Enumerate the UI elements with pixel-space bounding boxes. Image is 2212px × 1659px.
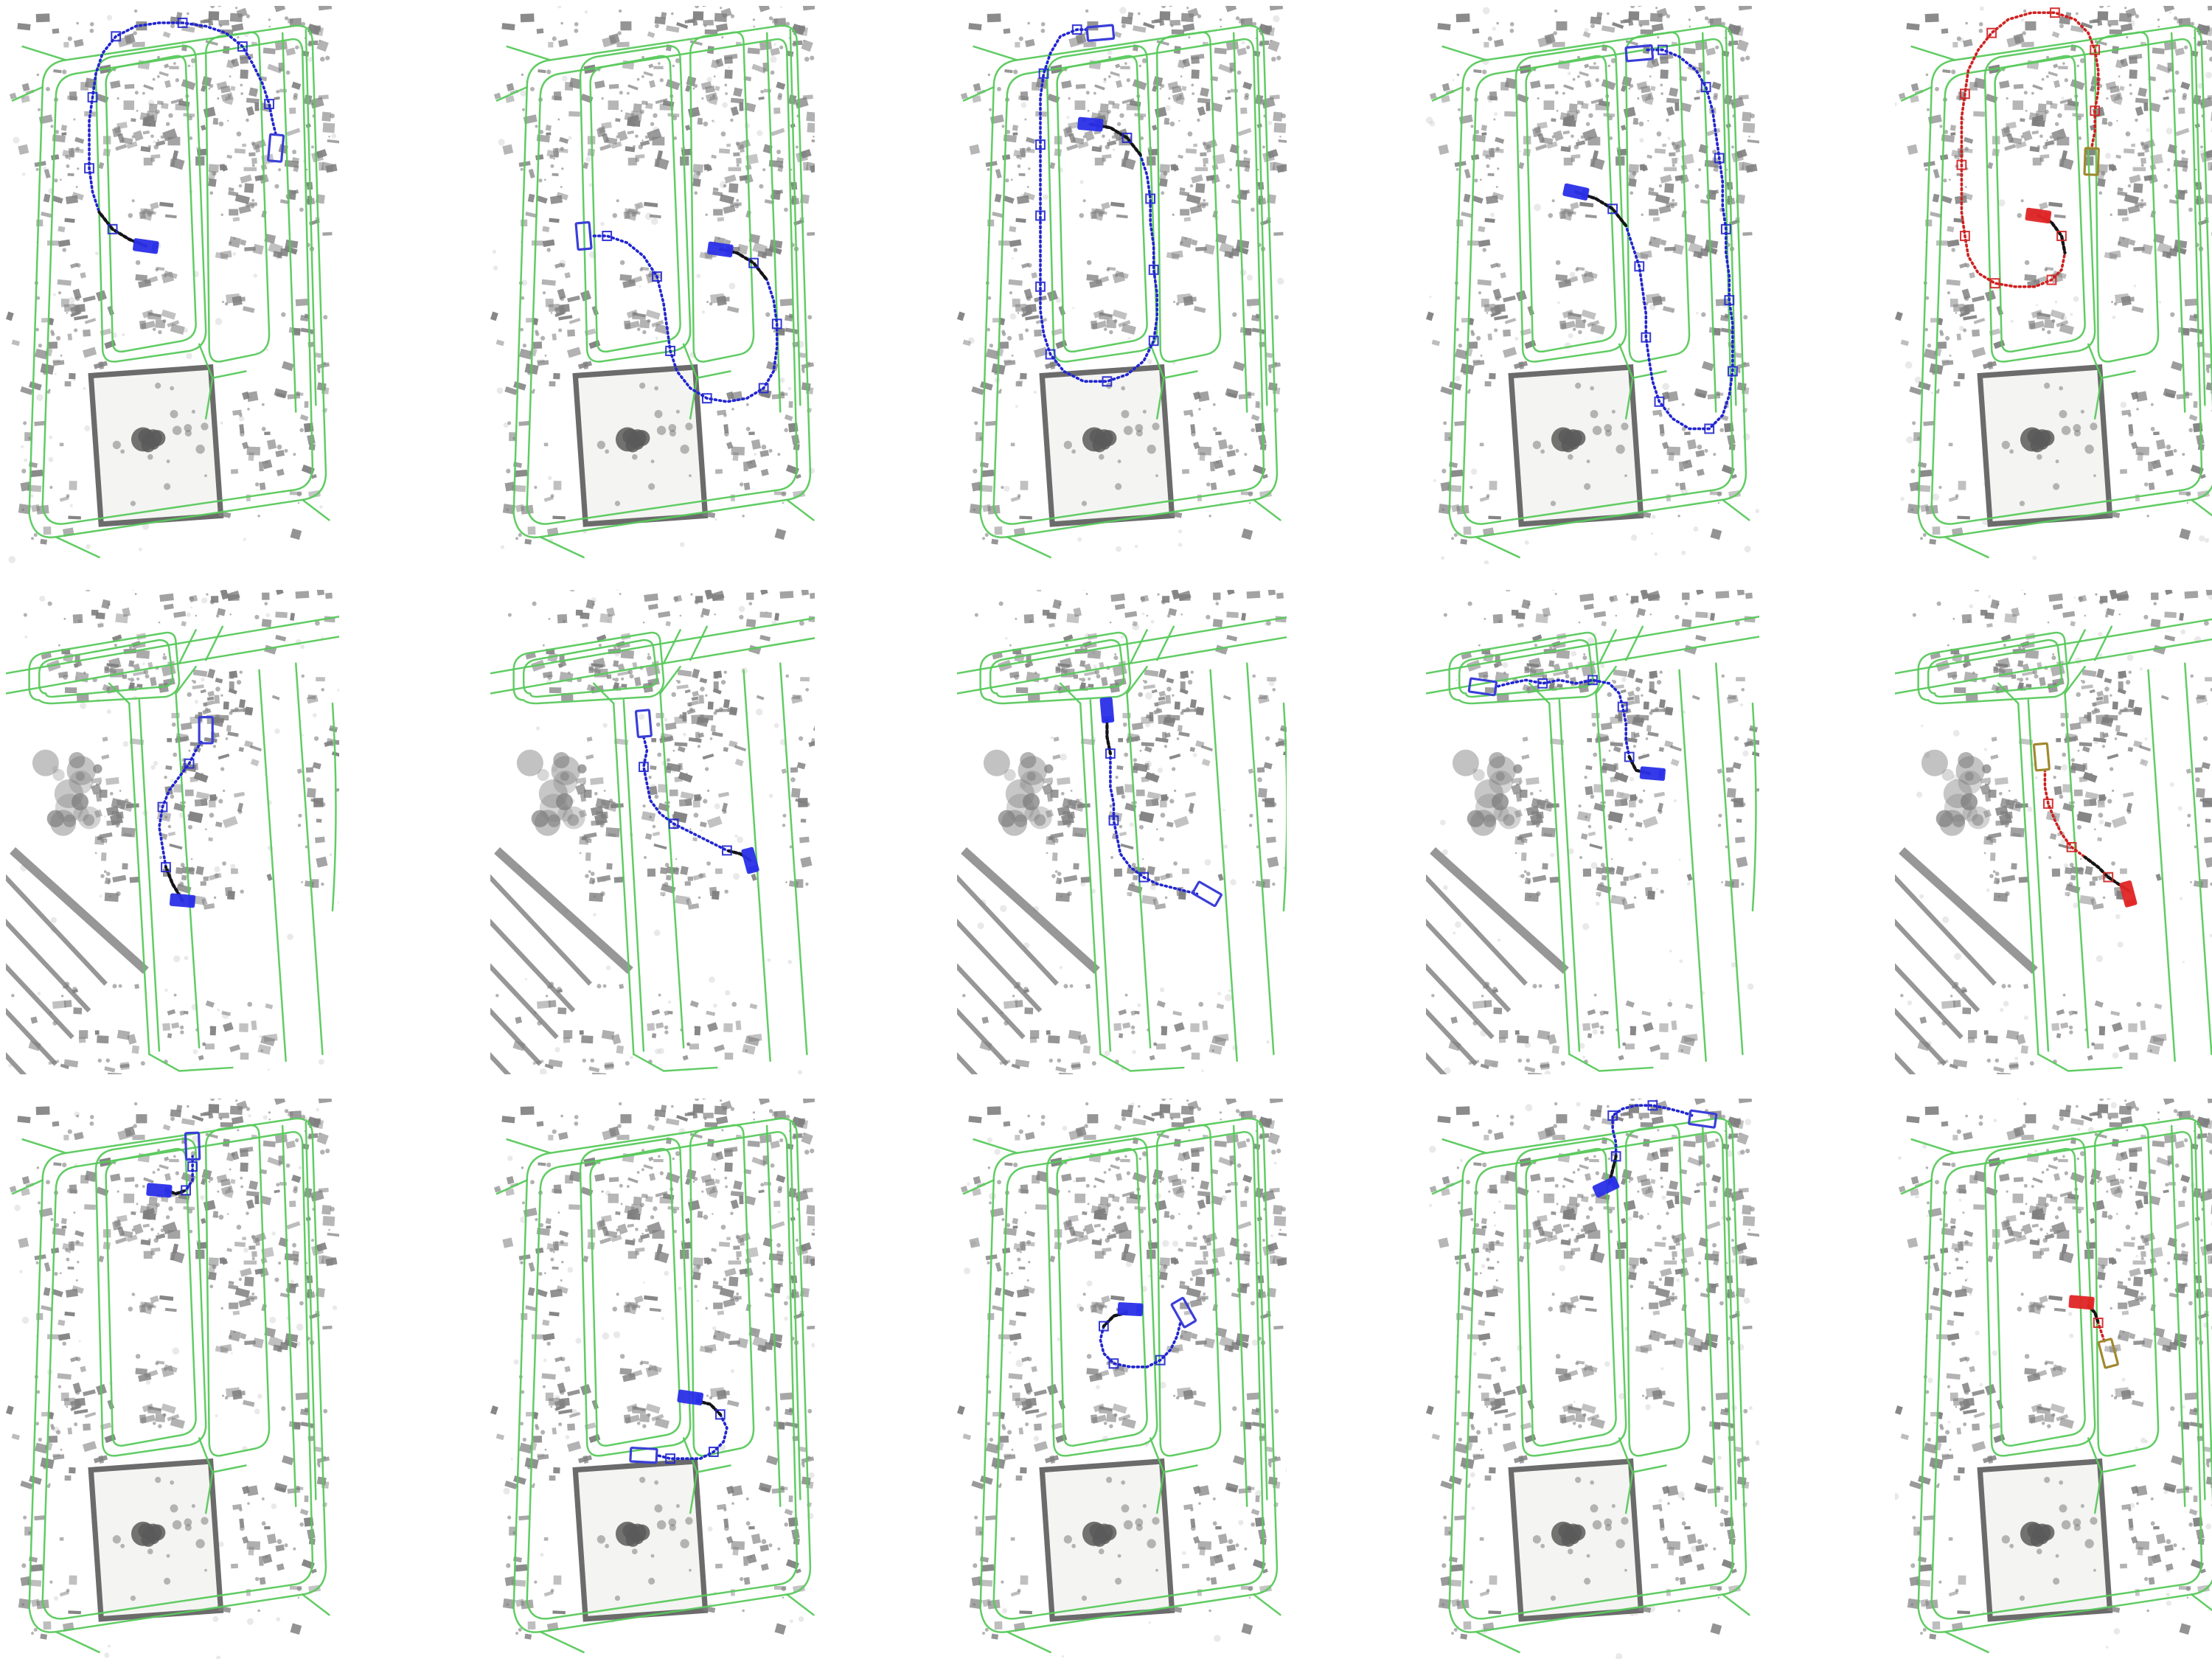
trajectory-path: [1496, 680, 1649, 773]
ego-vehicle-box: [1077, 116, 1104, 131]
map-panel-r1c5: [1895, 6, 2212, 564]
ego-vehicle-box: [146, 1183, 173, 1197]
aerial-map-r1c4: [1426, 6, 1759, 564]
ego-vehicle-box: [1099, 697, 1114, 723]
trajectory-markers: [666, 1410, 725, 1463]
map-panel-r1c4: [1426, 6, 1761, 564]
aerial-background: [490, 1099, 815, 1640]
aerial-map-r1c3: [957, 6, 1287, 564]
trajectory-figure-grid: [0, 0, 2212, 1659]
map-panel-r3c3: [957, 1099, 1287, 1659]
goal-box: [2034, 743, 2049, 771]
map-panel-r2c1: [6, 590, 339, 1074]
map-panel-r1c3: [957, 6, 1287, 564]
aerial-map-r3c4: [1426, 1099, 1759, 1659]
aerial-background: [6, 590, 339, 1074]
map-panel-r1c1: [6, 6, 339, 564]
aerial-map-r2c5: [1895, 590, 2212, 1074]
aerial-map-r2c4: [1426, 590, 1759, 1074]
map-panel-r3c2: [490, 1099, 815, 1659]
aerial-background: [1426, 590, 1759, 1074]
aerial-map-r3c2: [490, 1099, 815, 1659]
goal-box: [1087, 25, 1114, 41]
ego-vehicle-box: [133, 238, 159, 254]
goal-box: [636, 710, 651, 737]
map-panel-r2c5: [1895, 590, 2212, 1074]
aerial-background: [6, 1099, 339, 1640]
map-panel-r2c4: [1426, 590, 1761, 1074]
aerial-map-r3c5: [1895, 1099, 2212, 1659]
ego-vehicle-box: [1117, 1302, 1143, 1316]
aerial-background: [1426, 6, 1759, 545]
aerial-map-r3c1: [6, 1099, 339, 1659]
map-panel-r3c1: [6, 1099, 339, 1659]
aerial-map-r3c3: [957, 1099, 1287, 1659]
ego-vehicle-box: [1562, 183, 1590, 201]
aerial-background: [6, 6, 339, 545]
map-panel-r3c4: [1426, 1099, 1761, 1659]
map-panel-r3c5: [1895, 1099, 2212, 1659]
map-noise: [518, 597, 815, 1074]
ego-vehicle-box: [677, 1389, 703, 1405]
goal-box: [2098, 1339, 2118, 1368]
aerial-background: [1895, 1099, 2212, 1640]
aerial-map-r1c1: [6, 6, 339, 564]
map-noise: [978, 599, 1287, 1072]
aerial-map-r1c5: [1895, 6, 2212, 564]
map-panel-r2c2: [490, 590, 815, 1074]
aerial-background: [957, 1099, 1287, 1640]
trajectory-blue: [1496, 675, 1649, 773]
aerial-background: [1895, 590, 2212, 1074]
ego-vehicle-box: [170, 893, 196, 908]
ego-vehicle-box: [1640, 766, 1666, 781]
aerial-background: [1426, 1099, 1759, 1640]
aerial-map-r2c2: [490, 590, 815, 1074]
map-panel-r1c2: [490, 6, 815, 564]
aerial-map-r1c2: [490, 6, 815, 564]
aerial-map-r2c3: [957, 590, 1287, 1074]
aerial-background: [957, 6, 1287, 545]
ego-vehicle-box: [2025, 207, 2051, 223]
map-panel-r2c3: [957, 590, 1287, 1074]
aerial-map-r2c1: [6, 590, 339, 1074]
trajectory-blue: [1099, 1312, 1180, 1368]
ego-vehicle-box: [2068, 1295, 2095, 1310]
